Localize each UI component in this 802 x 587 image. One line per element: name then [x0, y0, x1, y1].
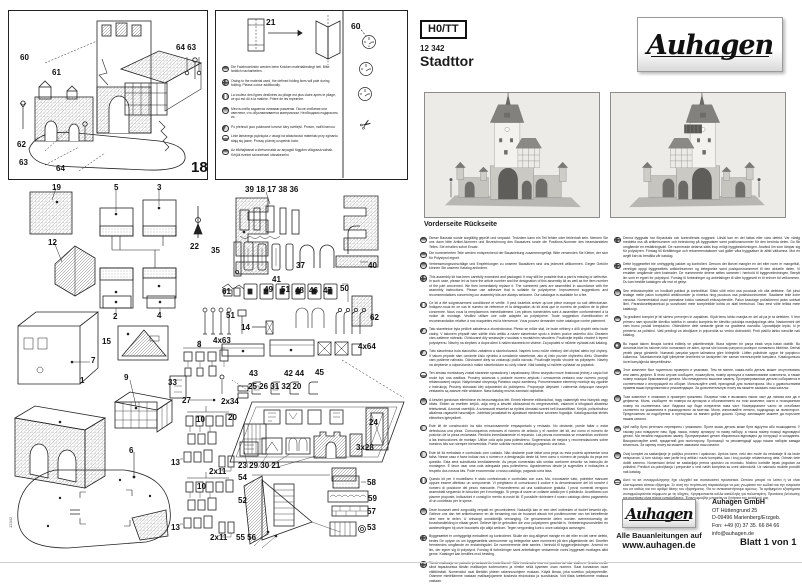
fold-note-text: Die Falzbruchlinien werden beim Knicken … — [231, 65, 340, 74]
flag-hu-icon — [222, 149, 229, 156]
fold-note-box: ✂ Die Falzbruchlinien werden beim Knicke… — [215, 10, 408, 180]
part-label: 14 — [241, 324, 250, 332]
instruction-paragraph: Bu inşaat takımı itinayla kontrol edilmi… — [614, 342, 800, 364]
instruction-text: See ehituskomplekt on hoolikalt pakitud … — [623, 289, 800, 311]
part-label: 64 63 — [176, 44, 196, 52]
scale-badge: H0/TT — [420, 20, 467, 39]
flag-gb-icon — [420, 275, 427, 282]
part-label: 55 56 — [236, 534, 256, 542]
instruction-paragraph: Этот комплект был тщательно проверен и у… — [614, 368, 800, 390]
flag-se-icon — [614, 237, 621, 244]
instruction-text: Verbesserungsvorschläge und Empfehlungen… — [429, 262, 608, 271]
part-label: 2 — [113, 313, 117, 321]
part-label: 63 — [19, 159, 28, 167]
part-label: 10 — [196, 416, 205, 424]
instruction-text: Ta gradbeni komplet je bil skrbno prever… — [623, 315, 800, 337]
part-label: 43 — [249, 370, 258, 378]
instruction-text: Deze bouwset werd zorgvuldig verpakt en … — [429, 508, 608, 530]
instruction-text: Byggesættet er omhyggeligt emballeret og… — [429, 534, 608, 556]
instruction-paragraph: Ovaj komplet za sastavljanje je pažljivo… — [614, 452, 800, 474]
flag-it-icon — [420, 477, 427, 484]
instruction-text: Dette byggesettet ble omhyggelig pakket … — [623, 262, 800, 284]
fold-note-paragraph: Linie łamanego pęknięcia z uwagi na właś… — [222, 134, 340, 146]
photo-caption: Vorderseite Rückseite — [424, 221, 497, 228]
instruction-paragraph: Αυτό το κιτ συναρμολόγησης έχει ελεγχθεί… — [614, 478, 800, 500]
instruction-text: Dieser Bausatz wurde sorgfältig geprüft … — [429, 236, 608, 249]
part-label: 1 — [80, 377, 84, 385]
instruction-text: Este kit de construcción ha sido minucio… — [429, 424, 608, 446]
instruction-text: Ce kit a été soigneusement conditionné e… — [429, 301, 608, 323]
product-name: Stadttor — [420, 53, 474, 69]
instruction-paragraph: Denna byggsats har förpackats och kontro… — [614, 236, 800, 258]
tagline-line1: Alle Bauanleitungen auf — [608, 531, 710, 540]
part-label: 4 — [157, 312, 161, 320]
part-label: 49 — [264, 286, 273, 294]
part-label: 3 — [157, 184, 161, 192]
instruction-text: Този комплект е опакован и проверен гриж… — [623, 395, 800, 422]
instruction-text: A készlet gondosan ellenőrizve és becsom… — [429, 398, 608, 420]
instruction-paragraph: Tämä mallisarja on pakattu ja tarkastett… — [420, 561, 608, 583]
phone-line: Fon: +49 (0) 37 35. 66 84 66 — [712, 523, 780, 531]
parts-diagram-drawing — [0, 180, 410, 565]
part-label: 13 — [171, 459, 180, 467]
product-photo-back — [610, 92, 786, 218]
part-label: 47 — [323, 287, 332, 295]
part-label: 46 — [309, 287, 318, 295]
instruction-paragraph: Die nummerierten Teile werden entspreche… — [420, 251, 608, 260]
company-address: Auhagen GmbH OT Hüttengrund 25 D-09496 M… — [712, 499, 780, 538]
instruction-text: This assembly kit has been carefully exa… — [429, 275, 608, 297]
instruction-paragraph: Verbesserungsvorschläge und Empfehlungen… — [420, 262, 608, 271]
instruction-paragraph: See ehituskomplekt on hoolikalt pakitud … — [614, 289, 800, 311]
part-label: 9 — [124, 374, 128, 382]
bottom-rule — [0, 562, 802, 563]
fold-note-paragraph: Az élkihajtásnál a törésvonalak az anyag… — [222, 148, 340, 160]
part-label: 57 — [367, 508, 376, 516]
figure-number: 18 — [191, 160, 208, 175]
instruction-paragraph: Ten zestaw montażowy został starannie sp… — [420, 371, 608, 393]
instruction-text: Этот комплект был тщательно проверен и у… — [623, 368, 800, 390]
fold-note-text: Az élkihajtásnál a törésvonalak az anyag… — [231, 148, 340, 157]
part-label: 51 — [281, 286, 290, 294]
part-label: 24 — [369, 419, 378, 427]
fold-note-text: Po přehnutí jsou polámané lomové čáry sv… — [231, 125, 335, 129]
address-line: OT Hüttengrund 25 — [712, 508, 780, 516]
instruction-text: Tämä mallisarja on pakattu ja tarkastett… — [429, 561, 608, 583]
instruction-paragraph: Este kit de construcción ha sido minucio… — [420, 424, 608, 446]
clock-part-label: 60 — [351, 22, 360, 31]
part-label: 60 — [20, 54, 29, 62]
instruction-paragraph: Byggesættet er omhyggeligt emballeret og… — [420, 534, 608, 556]
instruction-text: Este kit foi embalado e controlado com c… — [429, 451, 608, 473]
fold-note-paragraph: Die Falzbruchlinien werden beim Knicken … — [222, 65, 340, 77]
part-label: 13 — [171, 524, 180, 532]
fold-part-label: 21 — [266, 18, 275, 27]
part-label: 41 — [272, 276, 281, 284]
front-view-image — [425, 93, 599, 217]
instructions-column-right: Denna byggsats har förpackats och kontro… — [614, 236, 800, 505]
part-label: 52 — [238, 497, 247, 505]
part-label: 42 44 — [284, 370, 304, 378]
flag-pl-icon — [222, 135, 229, 142]
part-label: 4x64 — [358, 343, 376, 351]
flag-fr-icon — [420, 302, 427, 309]
part-label: 4x63 — [213, 337, 231, 345]
part-label: 53 — [367, 524, 376, 532]
part-label: 59 — [368, 495, 377, 503]
fold-note-paragraph: La couleur des lignes destinées au pliag… — [222, 93, 340, 105]
flag-nl-icon — [420, 508, 427, 515]
flag-ru-icon — [222, 107, 229, 114]
instruction-paragraph: Este kit foi embalado e controlado com c… — [420, 451, 608, 473]
footer-brand-logo: Auhagen — [622, 499, 696, 528]
instruction-paragraph: Ce kit a été soigneusement conditionné e… — [420, 301, 608, 323]
sheet-number: Blatt 1 von 1 — [740, 537, 797, 548]
instruction-paragraph: This assembly kit has been carefully exa… — [420, 275, 608, 297]
instruction-text: Die nummerierten Teile werden entspreche… — [429, 251, 608, 260]
part-label: 3x28 — [356, 444, 374, 452]
website-url[interactable]: www.auhagen.de — [608, 540, 710, 551]
part-label: 50 — [340, 285, 349, 293]
flag-hu-icon — [420, 398, 427, 405]
part-label: 15 — [102, 338, 111, 346]
flag-es-icon — [420, 425, 427, 432]
part-label: 62 — [370, 314, 379, 322]
fold-note-texts: Die Falzbruchlinien werden beim Knicken … — [222, 65, 340, 162]
part-label: 7 — [91, 357, 95, 365]
part-label: 19 — [52, 184, 61, 192]
back-view-image — [611, 93, 785, 217]
instruction-paragraph: Tato stavebnice byla pečlivě zabalena a … — [420, 327, 608, 345]
flag-ee-icon — [614, 289, 621, 296]
flag-de-icon — [222, 66, 229, 73]
flag-de-icon — [420, 237, 427, 244]
instruction-paragraph: A készlet gondosan ellenőrizve és becsom… — [420, 398, 608, 420]
instruction-paragraph: Dette byggesettet ble omhyggelig pakket … — [614, 262, 800, 284]
flag-si-icon — [614, 316, 621, 323]
part-label: 2x11 — [210, 534, 227, 542]
flag-sk-icon — [420, 350, 427, 357]
fold-note-paragraph: Места сгиба задаются линиями разметки. П… — [222, 107, 340, 124]
article-number: 12 342 — [420, 44, 444, 53]
fold-note-text: Linie łamanego pęknięcia z uwagi na właś… — [231, 134, 340, 143]
instruction-paragraph: Questo kit per il modellismo è stato con… — [420, 477, 608, 504]
flag-cz-icon — [222, 125, 229, 132]
part-label: 22 — [190, 243, 199, 251]
flag-gb-icon — [222, 79, 229, 86]
instruction-paragraph: Цей набір було ретельно перевірено і упа… — [614, 425, 800, 447]
instruction-text: Denna byggsats har förpackats och kontro… — [623, 236, 800, 258]
part-label: 45 — [315, 369, 324, 377]
instruction-text: Ovaj komplet za sastavljanje je pažljivo… — [623, 452, 800, 474]
part-label: 54 — [238, 474, 247, 482]
fold-note-text: Места сгиба задаются линиями разметки. П… — [231, 107, 340, 120]
flag-de-icon — [420, 262, 427, 269]
instruction-text: Ten zestaw montażowy został starannie sp… — [429, 371, 608, 393]
part-label: 2x11 — [209, 468, 226, 476]
instruction-paragraph: Ta gradbeni komplet je bil skrbno prever… — [614, 315, 800, 337]
company-name: Auhagen GmbH — [712, 499, 780, 506]
part-label: 40 — [368, 262, 377, 270]
flag-ru-icon — [614, 369, 621, 376]
part-label: 10 — [197, 483, 206, 491]
flag-pt-icon — [420, 451, 427, 458]
brand-logo: Auhagen — [637, 17, 783, 72]
part-label: 58 — [367, 479, 376, 487]
flag-ua-icon — [614, 426, 621, 433]
instruction-paragraph: Dieser Bausatz wurde sorgfältig geprüft … — [420, 236, 608, 249]
part-label: 61 — [52, 69, 61, 77]
part-label: 64 — [56, 165, 65, 173]
flag-pl-icon — [420, 372, 427, 379]
part-label: 48 — [295, 287, 304, 295]
instruction-text: Bu inşaat takımı itinayla kontrol edilmi… — [623, 342, 800, 364]
part-label: 12 — [48, 239, 57, 247]
instruction-text: Цей набір було ретельно перевірено і упа… — [623, 425, 800, 447]
part-label: 62 — [17, 141, 26, 149]
flag-de-icon — [420, 252, 427, 259]
flag-dk-icon — [420, 535, 427, 542]
part-label: 2x34 — [221, 398, 239, 406]
flag-cz-icon — [420, 328, 427, 335]
instruction-sheet: { "header": { "scale": "H0/TT", "article… — [0, 0, 802, 567]
part-label: 23 29 30 21 — [238, 462, 280, 470]
fold-note-paragraph: Po přehnutí jsou polámané lomové čáry sv… — [222, 125, 340, 133]
instruction-paragraph: Deze bouwset werd zorgvuldig verpakt en … — [420, 508, 608, 530]
fold-note-text: Owing to the material used, the defined … — [231, 79, 340, 88]
part-label: 5 — [114, 184, 118, 192]
instruction-text: Questo kit per il modellismo è stato con… — [429, 477, 608, 504]
instructions-column-left: Dieser Bausatz wurde sorgfältig geprüft … — [420, 236, 608, 587]
instruction-paragraph: Táto stavebnica bola starostlivo zabalen… — [420, 349, 608, 367]
brand-logo-underline — [651, 56, 769, 58]
part-label: 51 — [226, 312, 235, 320]
scissors-icon: ✂ — [356, 115, 375, 135]
part-label: 37 — [296, 262, 305, 270]
part-label: 61 — [222, 288, 231, 296]
part-label: 25 26 31 32 20 — [248, 383, 301, 391]
print-code: 12342 — [8, 517, 13, 528]
part-label: 39 18 17 38 36 — [245, 186, 298, 194]
product-photo-front — [424, 92, 600, 218]
part-label: 8 — [197, 341, 201, 349]
footer-brand-logo-underline — [629, 520, 688, 521]
part-label: 27 — [182, 397, 191, 405]
part-label: 6 — [129, 447, 133, 455]
flag-rs-icon — [614, 452, 621, 459]
part-label: 20 — [228, 414, 237, 422]
part-label: 35 — [211, 247, 220, 255]
instruction-text: Αυτό το κιτ συναρμολόγησης έχει ελεγχθεί… — [623, 478, 800, 500]
fold-note-paragraph: Owing to the material used, the defined … — [222, 79, 340, 91]
instruction-paragraph: Този комплект е опакован и проверен гриж… — [614, 395, 800, 422]
brand-logo-text: Auhagen — [647, 32, 773, 59]
flag-gr-icon — [614, 479, 621, 486]
flag-fr-icon — [222, 93, 229, 100]
instruction-text: Táto stavebnica bola starostlivo zabalen… — [429, 349, 608, 367]
address-line: D-09496 Marienberg/Erzgeb. — [712, 515, 780, 523]
website-tagline: Alle Bauanleitungen auf www.auhagen.de — [608, 531, 710, 551]
flag-no-icon — [614, 263, 621, 270]
fold-note-text: La couleur des lignes destinées au pliag… — [231, 93, 340, 102]
exploded-view-drawing — [9, 11, 206, 178]
instruction-text: Tato stavebnice byla pečlivě zabalena a … — [429, 327, 608, 345]
part-label: 33 — [168, 379, 177, 387]
flag-bg-icon — [614, 395, 621, 402]
flag-tr-icon — [614, 342, 621, 349]
exploded-view-box — [8, 10, 208, 180]
